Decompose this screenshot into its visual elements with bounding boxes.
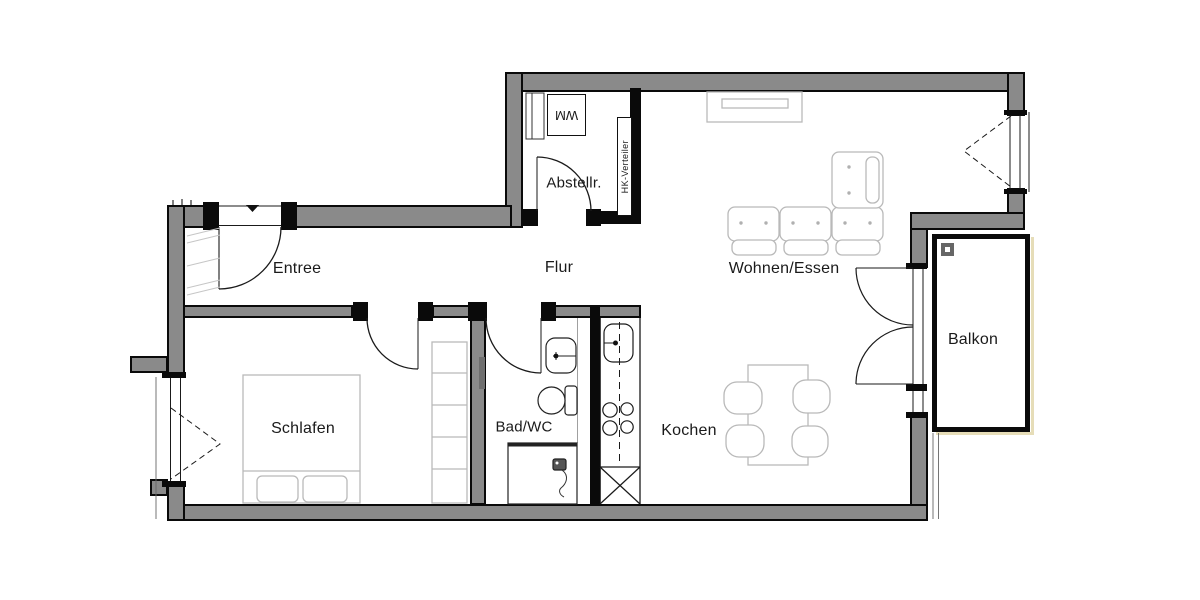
room-label-wohnen-essen: Wohnen/Essen — [729, 260, 840, 278]
wall-shaft-patch — [479, 357, 485, 389]
floor-plan: WM HK-Verteiler Entree Flur Abstellr. Wo… — [0, 0, 1200, 600]
toilet-icon — [538, 386, 577, 415]
shower-icon — [508, 443, 577, 504]
abstell-duct — [526, 93, 544, 139]
window-schlafen — [162, 372, 220, 487]
coat-rack-hatch — [187, 228, 220, 295]
stove-icon — [603, 403, 633, 435]
room-label-bad-wc: Bad/WC — [495, 419, 552, 436]
heating-distributor-box: HK-Verteiler — [617, 117, 632, 216]
balcony-doors — [856, 263, 927, 418]
bad-door — [486, 318, 541, 373]
heating-distributor-label: HK-Verteiler — [620, 140, 630, 193]
room-label-schlafen: Schlafen — [271, 420, 335, 438]
wardrobe — [432, 342, 467, 503]
kitchen-sink-icon — [604, 324, 633, 362]
window-upper-right — [964, 110, 1029, 194]
entrance-door — [173, 199, 281, 289]
tall-unit-icon — [600, 467, 640, 504]
room-label-kochen: Kochen — [661, 422, 716, 440]
plan-linework — [0, 0, 1200, 600]
schlafen-door — [367, 318, 418, 369]
dining-set — [724, 365, 830, 465]
room-label-abstellraum: Abstellr. — [546, 175, 601, 192]
furniture — [187, 92, 883, 503]
kitchen-counter — [600, 318, 640, 504]
entrance-marker-icon — [246, 205, 259, 212]
room-label-entree: Entree — [273, 260, 321, 278]
sideboard — [707, 92, 802, 122]
sofa — [728, 152, 883, 255]
washing-machine-box: WM — [547, 94, 586, 136]
bad-fixtures — [508, 318, 578, 504]
washing-machine-label: WM — [555, 108, 578, 123]
room-label-balkon: Balkon — [948, 331, 998, 349]
bed — [243, 375, 360, 503]
washbasin-icon — [546, 338, 576, 373]
room-label-flur: Flur — [545, 259, 573, 277]
